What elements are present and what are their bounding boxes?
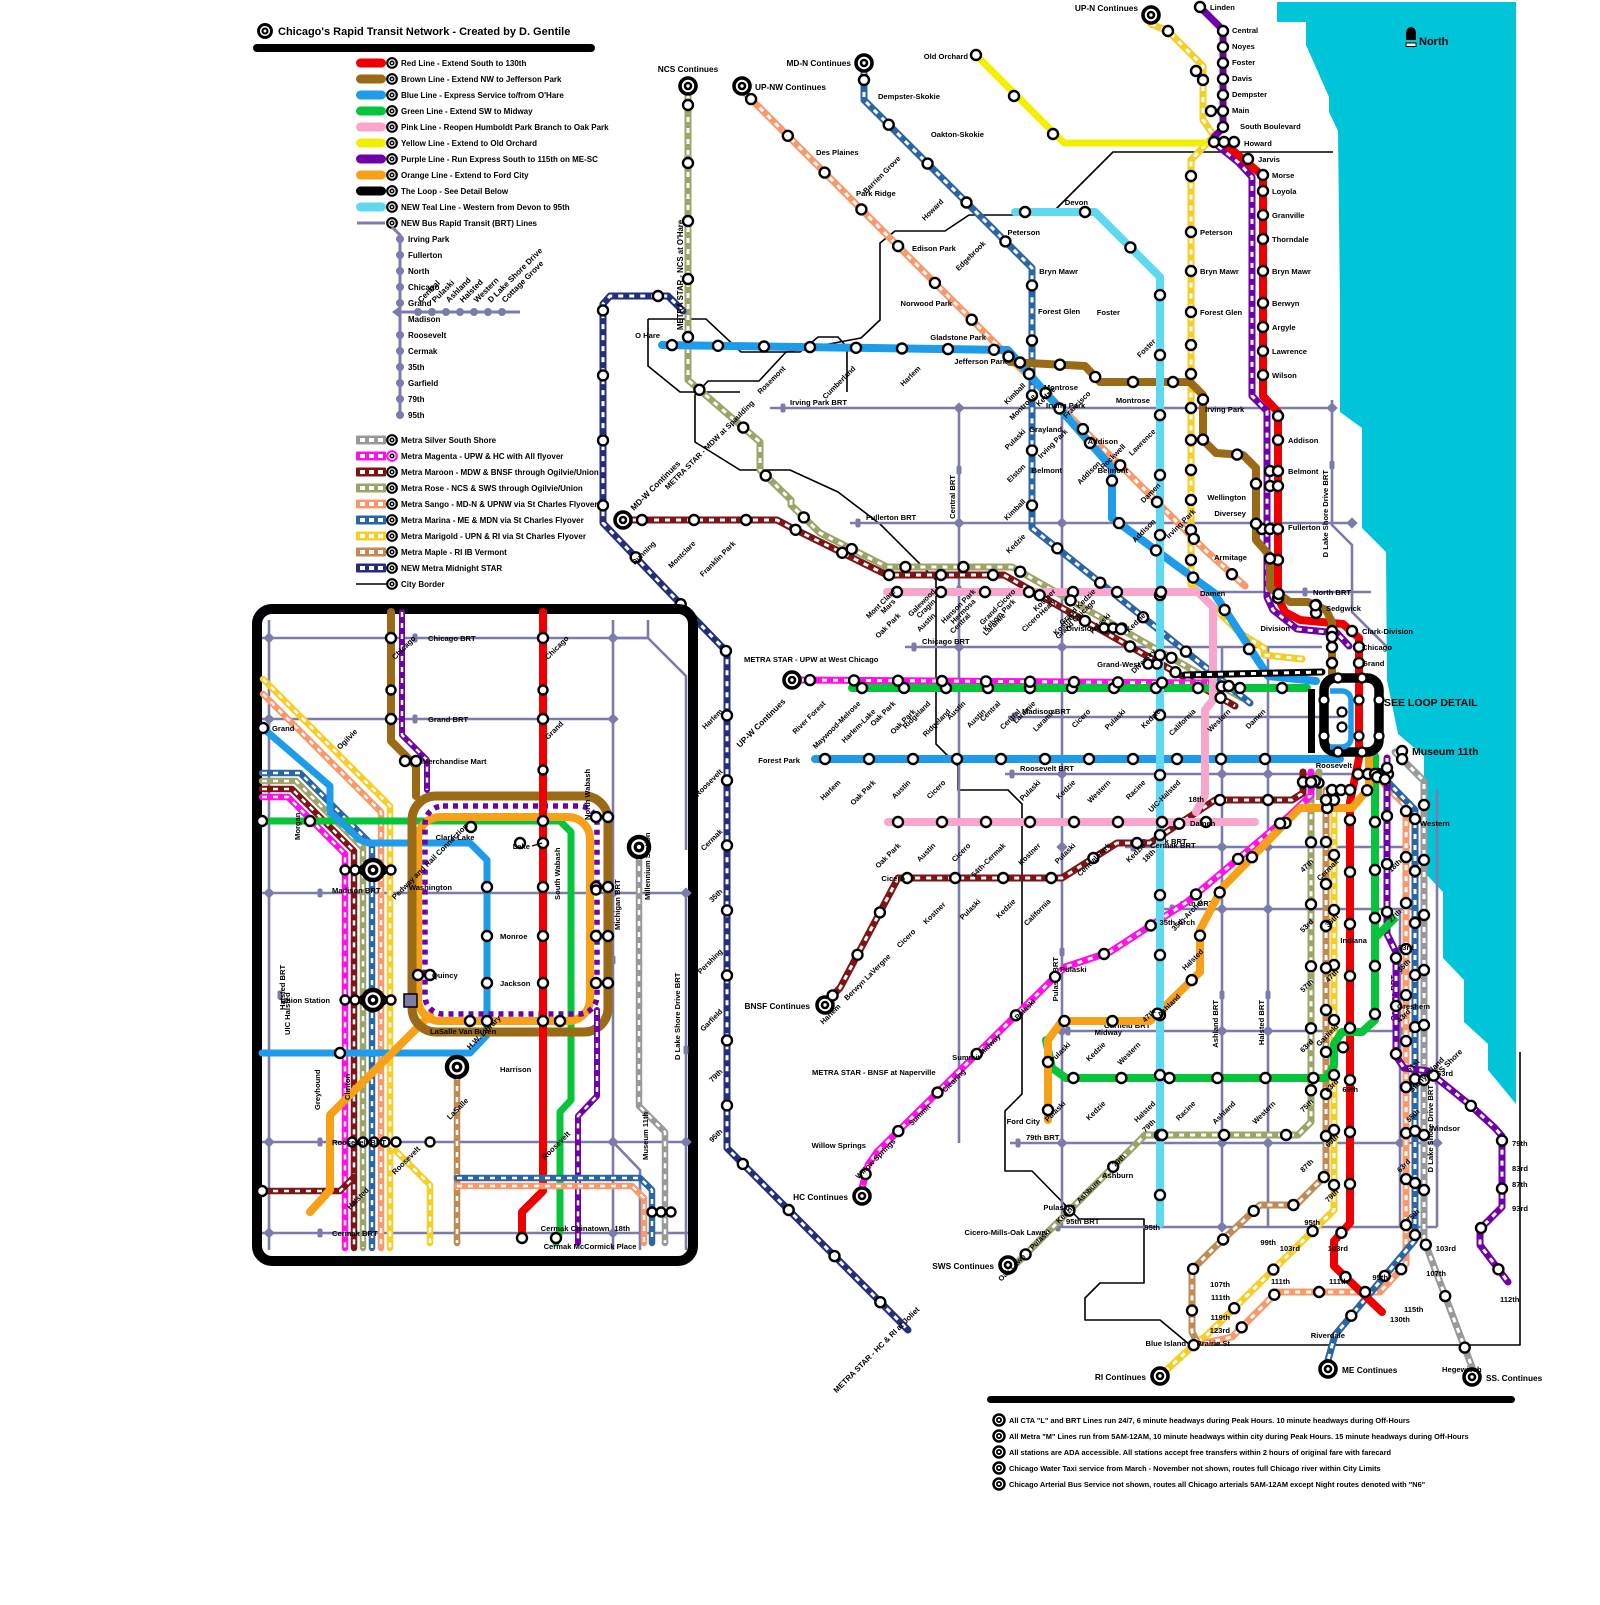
svg-text:63rd: 63rd [1398, 943, 1414, 952]
svg-text:Cermak McCormick Place: Cermak McCormick Place [544, 1242, 637, 1251]
svg-text:NCS Continues: NCS Continues [658, 64, 719, 74]
svg-text:Windsor: Windsor [1430, 1124, 1460, 1133]
svg-text:Oakton-Skokie: Oakton-Skokie [931, 130, 984, 139]
svg-text:Dempster-Skokie: Dempster-Skokie [878, 92, 940, 101]
svg-text:18th: 18th [1188, 795, 1204, 804]
svg-text:Merchandise Mart: Merchandise Mart [422, 757, 487, 766]
svg-text:Cermak: Cermak [408, 347, 438, 356]
svg-text:Metra Maroon - MDW & BNSF thro: Metra Maroon - MDW & BNSF through Ogilvi… [401, 468, 599, 477]
svg-text:Midway: Midway [1095, 1028, 1123, 1037]
svg-text:Quincy: Quincy [432, 971, 459, 980]
svg-text:112th: 112th [1500, 1295, 1520, 1304]
svg-text:North: North [408, 267, 429, 276]
svg-text:BNSF Continues: BNSF Continues [745, 1001, 811, 1011]
svg-text:All stations are ADA accessibl: All stations are ADA accessible. All sta… [1009, 1448, 1391, 1457]
svg-text:Pulaski: Pulaski [1060, 965, 1087, 974]
svg-text:Fullerton BRT: Fullerton BRT [866, 513, 917, 522]
svg-text:18th: 18th [614, 1224, 630, 1233]
svg-text:Riverdale: Riverdale [1311, 1331, 1345, 1340]
svg-text:METRA STAR - BNSF at Napervill: METRA STAR - BNSF at Naperville [812, 1068, 936, 1077]
svg-text:Indiana: Indiana [1340, 936, 1367, 945]
svg-text:Prairie St: Prairie St [1197, 1339, 1231, 1348]
svg-text:Metra Sango - MD-N & UPNW via: Metra Sango - MD-N & UPNW via St Charles… [401, 500, 597, 509]
svg-text:O Hare: O Hare [635, 331, 660, 340]
svg-text:Norwood Park: Norwood Park [901, 299, 953, 308]
svg-text:111th: 111th [1211, 1293, 1230, 1302]
svg-text:Main: Main [1232, 106, 1250, 115]
svg-text:Western: Western [1420, 819, 1450, 828]
svg-text:Berwyn: Berwyn [1272, 299, 1300, 308]
svg-text:95th BRT: 95th BRT [1066, 1217, 1100, 1226]
svg-text:Noyes: Noyes [1232, 42, 1255, 51]
svg-text:95th: 95th [1372, 1273, 1388, 1282]
svg-text:Blue Line - Express Service to: Blue Line - Express Service to/from O'Ha… [401, 91, 564, 100]
svg-text:95th: 95th [408, 411, 425, 420]
svg-text:Jackson: Jackson [500, 979, 531, 988]
svg-text:Metra Marigold - UPN & RI via: Metra Marigold - UPN & RI via St Charles… [401, 532, 586, 541]
svg-text:Jarvis: Jarvis [1258, 155, 1280, 164]
svg-text:Montrose: Montrose [1116, 396, 1150, 405]
svg-text:Bryn Mawr: Bryn Mawr [1272, 267, 1311, 276]
svg-text:Belmont: Belmont [1288, 467, 1319, 476]
svg-text:Addison: Addison [1288, 436, 1319, 445]
svg-text:Belmont: Belmont [1032, 466, 1063, 475]
svg-text:Roosevelt BRT: Roosevelt BRT [1020, 764, 1074, 773]
svg-text:All Metra "M" Lines run from 5: All Metra "M" Lines run from 5AM-12AM, 1… [1009, 1432, 1469, 1441]
svg-text:Bryn Mawr: Bryn Mawr [1200, 267, 1239, 276]
svg-text:Greshem: Greshem [1397, 1002, 1430, 1011]
svg-text:Ashburn: Ashburn [1102, 1171, 1134, 1180]
svg-text:Fullerton: Fullerton [408, 251, 442, 260]
svg-text:Roosevelt: Roosevelt [408, 331, 447, 340]
svg-text:Wellington: Wellington [1207, 493, 1246, 502]
svg-text:Cermak BRT: Cermak BRT [332, 1229, 378, 1238]
svg-text:95th: 95th [1144, 1223, 1160, 1232]
svg-text:NEW Bus Rapid Transit (BRT) Li: NEW Bus Rapid Transit (BRT) Lines [401, 219, 538, 228]
svg-text:Metra Marina - ME & MDN via St: Metra Marina - ME & MDN via St Charles F… [401, 516, 584, 525]
svg-text:Purple Line - Run Express Sout: Purple Line - Run Express South to 115th… [401, 155, 598, 164]
svg-text:Lawrence: Lawrence [1272, 347, 1307, 356]
svg-text:Forest Glen: Forest Glen [1200, 308, 1243, 317]
svg-text:Gladstone Park: Gladstone Park [930, 333, 986, 342]
svg-text:Chicago BRT: Chicago BRT [428, 634, 476, 643]
svg-text:Granville: Granville [1272, 211, 1305, 220]
svg-text:Wilson: Wilson [1272, 371, 1297, 380]
svg-text:111th: 111th [1271, 1277, 1290, 1286]
svg-text:115th: 115th [1404, 1305, 1424, 1314]
svg-text:Irving Park BRT: Irving Park BRT [790, 398, 847, 407]
svg-text:Peterson: Peterson [1200, 228, 1233, 237]
svg-text:Ford City: Ford City [1007, 1117, 1041, 1126]
svg-text:Hegewisch: Hegewisch [1442, 1365, 1482, 1374]
svg-text:107th: 107th [1426, 1269, 1446, 1278]
svg-text:Central BRT: Central BRT [948, 475, 957, 519]
svg-text:MD-N Continues: MD-N Continues [786, 58, 851, 68]
svg-text:NEW Metra Midnight STAR: NEW Metra Midnight STAR [401, 564, 502, 573]
svg-text:Dempster: Dempster [1232, 90, 1267, 99]
svg-text:Central: Central [1232, 26, 1258, 35]
svg-text:SS. Continues: SS. Continues [1486, 1373, 1543, 1383]
svg-text:103rd: 103rd [1436, 1244, 1457, 1253]
svg-text:79th BRT: 79th BRT [1026, 1133, 1060, 1142]
svg-text:Irving Park: Irving Park [408, 235, 450, 244]
svg-text:Willow Springs: Willow Springs [812, 1141, 866, 1150]
svg-text:Blue Island: Blue Island [1145, 1339, 1186, 1348]
svg-text:Irving Park: Irving Park [1205, 405, 1245, 414]
svg-text:SEE LOOP DETAIL: SEE LOOP DETAIL [1384, 697, 1478, 709]
svg-text:130th: 130th [1390, 1315, 1410, 1324]
svg-text:Grand BRT: Grand BRT [428, 715, 468, 724]
svg-text:City Border: City Border [401, 580, 445, 589]
svg-text:METRA STAR - UPW at West Chica: METRA STAR - UPW at West Chicago [744, 655, 879, 664]
svg-text:RI Continues: RI Continues [1095, 1372, 1147, 1382]
svg-text:Devon: Devon [1065, 198, 1089, 207]
svg-text:Metra Rose - NCS & SWS through: Metra Rose - NCS & SWS through Ogilvie/U… [401, 484, 583, 493]
svg-text:Garfield: Garfield [408, 379, 438, 388]
svg-text:Loyola: Loyola [1272, 187, 1297, 196]
svg-text:Roosevelt: Roosevelt [1316, 761, 1353, 770]
svg-text:Cermak Chinatown: Cermak Chinatown [541, 1224, 610, 1233]
svg-text:Foster: Foster [1097, 308, 1120, 317]
svg-text:Sedgwick: Sedgwick [1326, 604, 1362, 613]
svg-text:Chicago Water Taxi service fro: Chicago Water Taxi service from March - … [1009, 1464, 1381, 1473]
svg-text:87th: 87th [1512, 1180, 1528, 1189]
svg-text:Grand: Grand [1362, 659, 1385, 668]
svg-text:Bryn Mawr: Bryn Mawr [1039, 267, 1078, 276]
svg-text:Metra Maple - RI IB Vermont: Metra Maple - RI IB Vermont [401, 548, 507, 557]
svg-text:Museum 11th: Museum 11th [1412, 746, 1479, 758]
svg-text:Morgan: Morgan [293, 812, 302, 840]
svg-text:Roosevelt BRT: Roosevelt BRT [332, 1138, 386, 1147]
svg-text:Morse: Morse [1272, 171, 1294, 180]
svg-text:Damen: Damen [1200, 589, 1226, 598]
svg-text:South Wabash: South Wabash [553, 847, 562, 900]
svg-text:Metra Silver South Shore: Metra Silver South Shore [401, 436, 497, 445]
svg-text:Thorndale: Thorndale [1272, 235, 1309, 244]
svg-text:D Lake Shore Drive BRT: D Lake Shore Drive BRT [673, 972, 682, 1060]
svg-text:Cicero-Mills-Oak Lawn: Cicero-Mills-Oak Lawn [965, 1228, 1047, 1237]
svg-text:Ashland BRT: Ashland BRT [1211, 1000, 1220, 1048]
svg-text:Harrison: Harrison [500, 1065, 532, 1074]
svg-text:79th: 79th [408, 395, 425, 404]
svg-text:Argyle: Argyle [1272, 323, 1296, 332]
svg-text:Des Plaines: Des Plaines [816, 148, 859, 157]
svg-text:Forest Glen: Forest Glen [1038, 307, 1081, 316]
svg-text:Chicago Arterial Bus Service n: Chicago Arterial Bus Service not shown, … [1009, 1480, 1426, 1489]
svg-text:107th: 107th [1210, 1280, 1230, 1289]
svg-text:Cermak BRT: Cermak BRT [1150, 841, 1196, 850]
svg-text:Greyhound: Greyhound [313, 1069, 322, 1110]
svg-text:93rd: 93rd [1512, 1204, 1528, 1213]
svg-text:Cicero: Cicero [881, 874, 905, 883]
svg-text:69th: 69th [1342, 1085, 1358, 1094]
svg-text:Madison BRT: Madison BRT [332, 886, 381, 895]
svg-text:Madison: Madison [408, 315, 441, 324]
svg-text:Metra Magenta - UPW & HC with: Metra Magenta - UPW & HC with All flyove… [401, 452, 563, 461]
svg-text:Linden: Linden [1210, 3, 1235, 12]
svg-text:D Lake Shore Drive BRT: D Lake Shore Drive BRT [1321, 470, 1330, 558]
svg-text:Chicago's Rapid Transit Networ: Chicago's Rapid Transit Network - Create… [278, 26, 570, 38]
svg-text:North: North [1419, 36, 1449, 48]
svg-text:All CTA "L" and BRT Lines run: All CTA "L" and BRT Lines run 24/7, 6 mi… [1009, 1416, 1410, 1425]
svg-text:The Loop - See Detail Below: The Loop - See Detail Below [401, 187, 509, 196]
svg-text:123rd: 123rd [1210, 1326, 1231, 1335]
svg-text:Red Line - Extend South to 130: Red Line - Extend South to 130th [401, 59, 526, 68]
svg-text:NEW Teal Line - Western from D: NEW Teal Line - Western from Devon to 95… [401, 203, 570, 212]
svg-text:35th: 35th [408, 363, 425, 372]
svg-text:111th: 111th [1329, 1277, 1348, 1286]
svg-text:North Wabash: North Wabash [583, 768, 592, 820]
svg-text:Peterson: Peterson [1008, 228, 1041, 237]
svg-text:Halsted BRT: Halsted BRT [278, 964, 287, 1010]
svg-text:Clinton: Clinton [343, 1073, 352, 1100]
svg-text:Grand: Grand [272, 724, 295, 733]
svg-text:103rd: 103rd [1280, 1244, 1301, 1253]
svg-text:Jefferson Park: Jefferson Park [954, 357, 1008, 366]
svg-text:Yellow Line - Extend to Old Or: Yellow Line - Extend to Old Orchard [401, 139, 537, 148]
svg-text:HC Continues: HC Continues [793, 1192, 848, 1202]
svg-text:Clark-Division: Clark-Division [1362, 627, 1413, 636]
svg-text:North BRT: North BRT [1313, 588, 1351, 597]
svg-text:Chicago: Chicago [1362, 643, 1392, 652]
svg-text:Forest Park: Forest Park [758, 756, 801, 765]
svg-text:Old Orchard: Old Orchard [924, 52, 969, 61]
svg-text:83rd: 83rd [1512, 1164, 1528, 1173]
svg-text:Fullerton: Fullerton [1288, 523, 1321, 532]
svg-text:Green Line - Extend SW to Midw: Green Line - Extend SW to Midway [401, 107, 533, 116]
svg-text:Foster: Foster [1232, 58, 1255, 67]
svg-text:Davis: Davis [1232, 74, 1252, 83]
svg-text:Armitage: Armitage [1214, 553, 1247, 562]
svg-text:UP-N Continues: UP-N Continues [1075, 3, 1139, 13]
svg-text:Diversey: Diversey [1214, 509, 1246, 518]
svg-text:Michigan BRT: Michigan BRT [613, 879, 622, 930]
svg-text:Brown Line - Extend NW to Jeff: Brown Line - Extend NW to Jefferson Park [401, 75, 562, 84]
svg-text:Lake: Lake [513, 842, 530, 851]
svg-text:Monroe: Monroe [500, 932, 527, 941]
svg-text:Summit: Summit [952, 1053, 980, 1062]
svg-text:Chicago BRT: Chicago BRT [922, 637, 970, 646]
svg-text:95th: 95th [1304, 1218, 1320, 1227]
svg-text:Halsted BRT: Halsted BRT [1257, 1000, 1266, 1046]
svg-text:SWS Continues: SWS Continues [932, 1261, 994, 1271]
svg-text:Addison: Addison [1088, 437, 1119, 446]
svg-text:Museum 11th: Museum 11th [641, 1112, 650, 1160]
svg-text:99th: 99th [1260, 1238, 1276, 1247]
svg-text:Pink Line - Reopen Humboldt Pa: Pink Line - Reopen Humboldt Park Branch … [401, 123, 609, 132]
svg-text:Edison Park: Edison Park [912, 244, 957, 253]
svg-text:Division: Division [1260, 624, 1290, 633]
svg-text:119th: 119th [1211, 1313, 1231, 1322]
svg-text:Millennium Station: Millennium Station [643, 832, 652, 900]
svg-text:79th: 79th [1512, 1139, 1528, 1148]
svg-text:UP-NW Continues: UP-NW Continues [755, 82, 826, 92]
svg-text:Orange Line - Extend to Ford C: Orange Line - Extend to Ford City [401, 171, 529, 180]
svg-text:METRA STAR - NCS at O'Hare: METRA STAR - NCS at O'Hare [676, 219, 685, 330]
svg-text:Damen: Damen [1190, 819, 1216, 828]
svg-text:Washington: Washington [409, 883, 453, 892]
svg-text:103rd: 103rd [1328, 1244, 1349, 1253]
svg-text:ME Continues: ME Continues [1342, 1365, 1398, 1375]
svg-text:South Boulevard: South Boulevard [1240, 122, 1301, 131]
svg-text:Howard: Howard [1244, 139, 1272, 148]
